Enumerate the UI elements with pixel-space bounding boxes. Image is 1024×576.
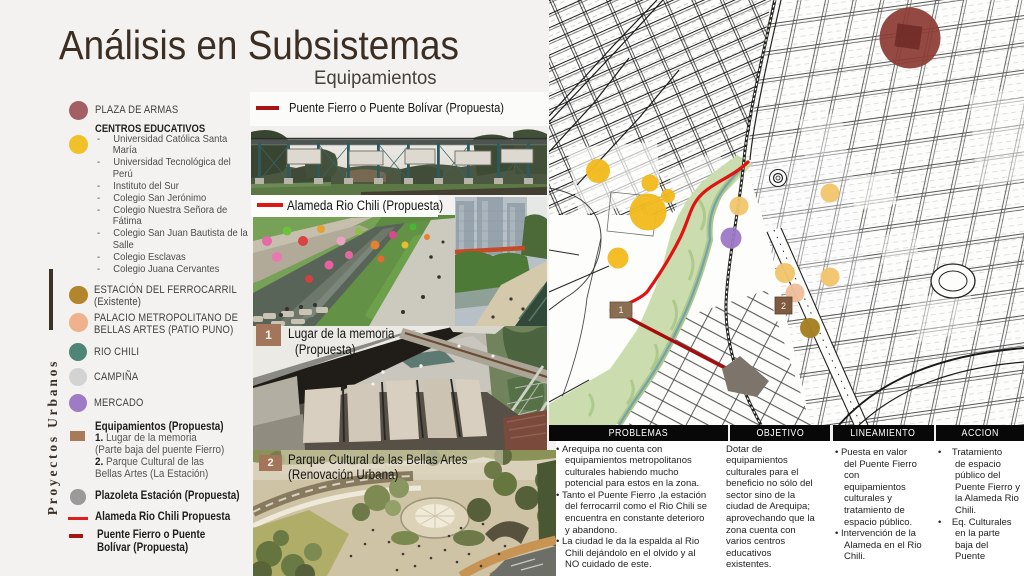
svg-text:1: 1 [618, 305, 623, 315]
svg-text:2: 2 [781, 301, 786, 311]
